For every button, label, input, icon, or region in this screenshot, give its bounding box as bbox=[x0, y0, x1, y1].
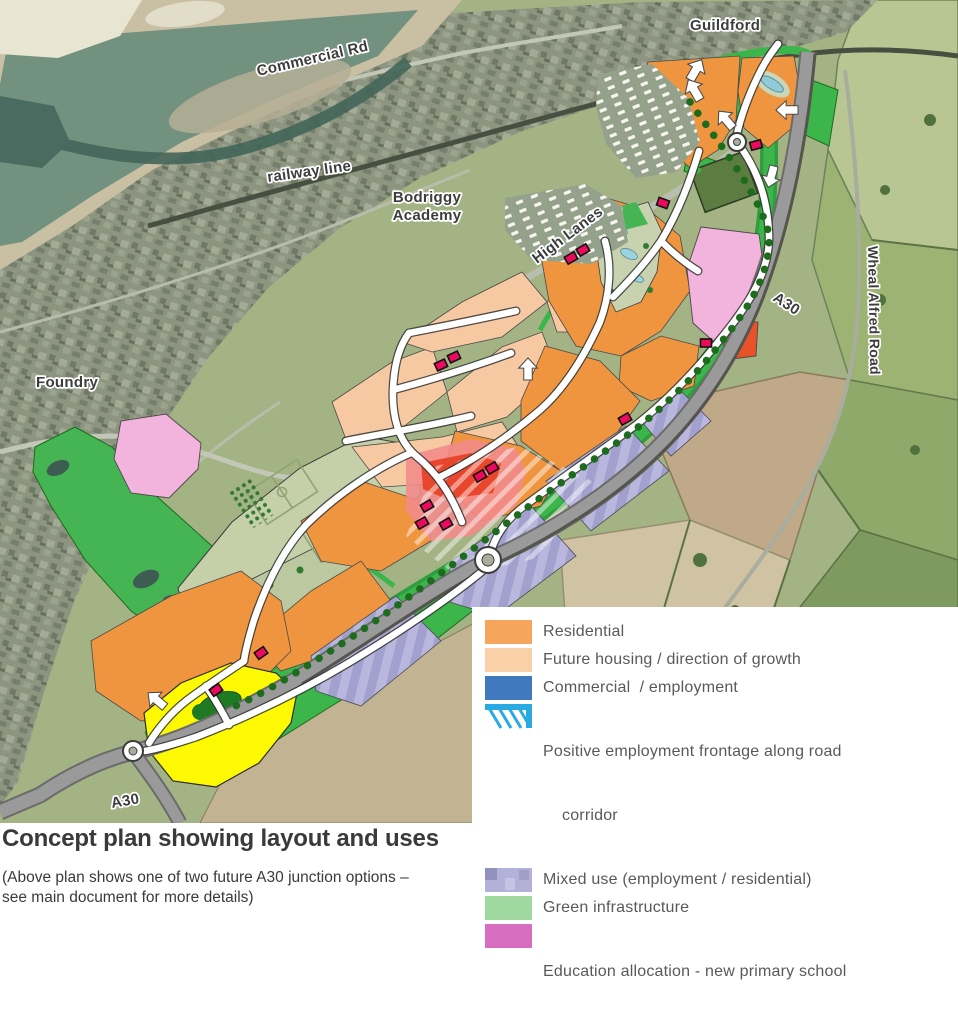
legend-label: Future housing / direction of growth bbox=[543, 646, 801, 674]
legend-swatch-mixed-use bbox=[485, 868, 532, 892]
map-label-guildford: Guildford bbox=[690, 17, 760, 34]
legend-swatch-residential bbox=[485, 620, 532, 644]
legend-item-mixed-use: Mixed use (employment / residential) bbox=[485, 866, 958, 894]
map-label-wheal-alfred-road: Wheal Alfred Road bbox=[865, 246, 883, 375]
legend-label: Mixed use (employment / residential) bbox=[543, 866, 812, 894]
legend-label: Green infrastructure bbox=[543, 894, 689, 922]
legend-label: Education allocation - new primary schoo… bbox=[543, 958, 846, 986]
legend-label: Residential bbox=[543, 618, 624, 646]
legend-label: corridor bbox=[543, 802, 842, 830]
map-label-foundry: Foundry bbox=[36, 374, 98, 391]
map-label-bodriggy-academy-2: Academy bbox=[393, 207, 462, 224]
legend-label: Commercial / employment bbox=[543, 674, 738, 702]
legend-item-green-infrastructure: Green infrastructure bbox=[485, 894, 958, 922]
legend-item-employment-frontage: Positive employment frontage along road … bbox=[485, 702, 958, 866]
legend-swatch-commercial bbox=[485, 676, 532, 700]
page-subtitle-line2: see main document for more details) bbox=[2, 888, 409, 908]
legend-swatch-education bbox=[485, 924, 532, 948]
legend-label: Positive employment frontage along road bbox=[543, 738, 842, 766]
legend-swatch-future-housing bbox=[485, 648, 532, 672]
legend-item-residential: Residential bbox=[485, 618, 958, 646]
page-subtitle-line1: (Above plan shows one of two future A30 … bbox=[2, 868, 409, 888]
legend-item-commercial: Commercial / employment bbox=[485, 674, 958, 702]
legend-item-future-housing: Future housing / direction of growth bbox=[485, 646, 958, 674]
legend-swatch-employment-frontage-hatch-icon bbox=[485, 704, 532, 728]
legend-item-education: Education allocation - new primary schoo… bbox=[485, 922, 958, 1014]
page-subtitle: (Above plan shows one of two future A30 … bbox=[2, 868, 409, 908]
map-label-bodriggy-academy-1: Bodriggy bbox=[393, 189, 462, 206]
page-title: Concept plan showing layout and uses bbox=[2, 825, 439, 853]
concept-plan-figure: Guildford Commercial Rd railway line Bod… bbox=[0, 0, 958, 1014]
legend-swatch-green-infrastructure bbox=[485, 896, 532, 920]
legend: Residential Future housing / direction o… bbox=[472, 607, 958, 1014]
